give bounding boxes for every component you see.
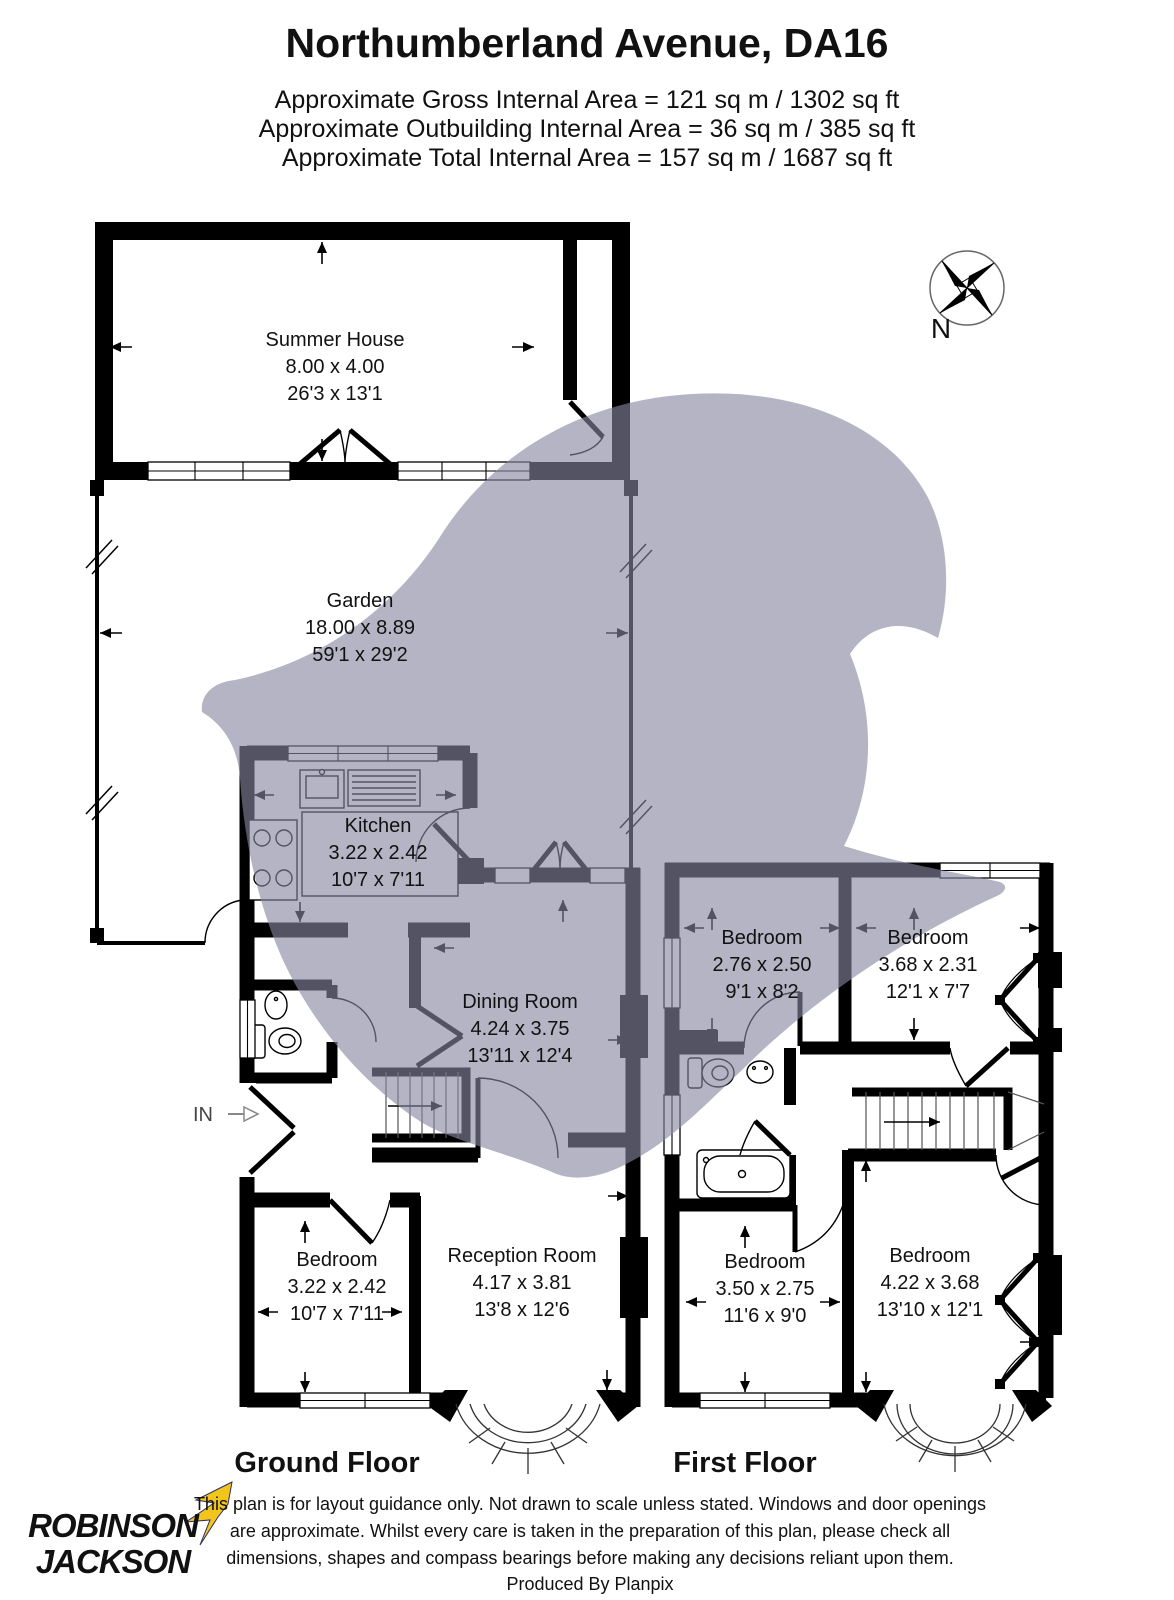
room-bedroom-ff-br-dim-m: 4.22 x 3.68: [881, 1272, 980, 1294]
room-dining-dim-ft: 13'11 x 12'4: [467, 1045, 572, 1067]
summer-house-walls: [104, 231, 621, 471]
compass: N: [930, 251, 1004, 344]
page-title: Northumberland Avenue, DA16: [286, 20, 889, 66]
outbuilding-area-line: Approximate Outbuilding Internal Area = …: [259, 115, 916, 143]
wc-sink: [265, 991, 287, 1019]
first-floor-stairs: [852, 1092, 1044, 1150]
room-bedroom-gf-dim-m: 3.22 x 2.42: [288, 1276, 387, 1298]
ground-floor-label: Ground Floor: [234, 1447, 419, 1479]
room-bedroom-ff-bl-dim-ft: 11'6 x 9'0: [724, 1305, 807, 1327]
bay-window-ground: [456, 1404, 600, 1474]
logo-line2: JACKSON: [36, 1543, 193, 1580]
room-bedroom-ff-bl-dim-m: 3.50 x 2.75: [716, 1278, 815, 1300]
room-garden: Garden: [327, 590, 394, 612]
room-garden-dim-m: 18.00 x 8.89: [305, 617, 415, 639]
room-bedroom-gf-dim-ft: 10'7 x 7'11: [290, 1303, 384, 1325]
room-summer-house: Summer House: [266, 329, 405, 351]
gross-area-line: Approximate Gross Internal Area = 121 sq…: [275, 86, 900, 114]
disclaimer: This plan is for layout guidance only. N…: [194, 1494, 986, 1594]
room-bedroom-ff-tl-dim-ft: 9'1 x 8'2: [725, 981, 798, 1003]
fence-cap: [90, 928, 104, 943]
disclaimer-line-4: Produced By Planpix: [506, 1574, 673, 1594]
room-bedroom-ff-tr-dim-m: 3.68 x 2.31: [879, 954, 978, 976]
room-summer-house-dim-m: 8.00 x 4.00: [286, 356, 385, 378]
floorplan-canvas: Northumberland Avenue, DA16 Approximate …: [0, 0, 1174, 1600]
disclaimer-line-2: are approximate. Whilst every care is ta…: [230, 1521, 950, 1541]
room-garden-dim-ft: 59'1 x 29'2: [312, 644, 408, 666]
room-reception: Reception Room: [448, 1245, 597, 1267]
room-kitchen-dim-m: 3.22 x 2.42: [329, 842, 428, 864]
room-bedroom-ff-br-dim-ft: 13'10 x 12'1: [877, 1299, 984, 1321]
room-reception-dim-ft: 13'8 x 12'6: [474, 1299, 570, 1321]
room-bedroom-ff-tl: Bedroom: [721, 927, 802, 949]
disclaimer-line-3: dimensions, shapes and compass bearings …: [226, 1548, 953, 1568]
compass-star: [940, 261, 994, 315]
room-dining-dim-m: 4.24 x 3.75: [471, 1018, 570, 1040]
room-bedroom-ff-tl-dim-m: 2.76 x 2.50: [713, 954, 812, 976]
room-bedroom-ff-tr-dim-ft: 12'1 x 7'7: [886, 981, 970, 1003]
room-kitchen-dim-ft: 10'7 x 7'11: [331, 869, 425, 891]
north-label: N: [931, 313, 951, 344]
room-bedroom-gf: Bedroom: [296, 1249, 377, 1271]
room-summer-house-dim-ft: 26'3 x 13'1: [287, 383, 383, 405]
bathroom-sink: [747, 1061, 773, 1083]
fence-cap: [90, 480, 104, 496]
disclaimer-line-1: This plan is for layout guidance only. N…: [194, 1494, 986, 1514]
room-bedroom-ff-bl: Bedroom: [724, 1251, 805, 1273]
floorplan-page: Northumberland Avenue, DA16 Approximate …: [0, 0, 1174, 1600]
room-bedroom-ff-tr: Bedroom: [887, 927, 968, 949]
bay-window-first: [884, 1404, 1026, 1472]
wc-fixtures: [250, 991, 301, 1058]
first-floor-label: First Floor: [673, 1447, 816, 1479]
room-bedroom-ff-br: Bedroom: [889, 1245, 970, 1267]
logo-line1: ROBINSON: [28, 1507, 200, 1544]
room-dining: Dining Room: [462, 991, 578, 1013]
watermark-bird: [202, 393, 1005, 1177]
total-area-line: Approximate Total Internal Area = 157 sq…: [282, 144, 892, 172]
room-kitchen: Kitchen: [345, 815, 412, 837]
in-label: IN: [193, 1104, 213, 1126]
room-reception-dim-m: 4.17 x 3.81: [473, 1272, 572, 1294]
